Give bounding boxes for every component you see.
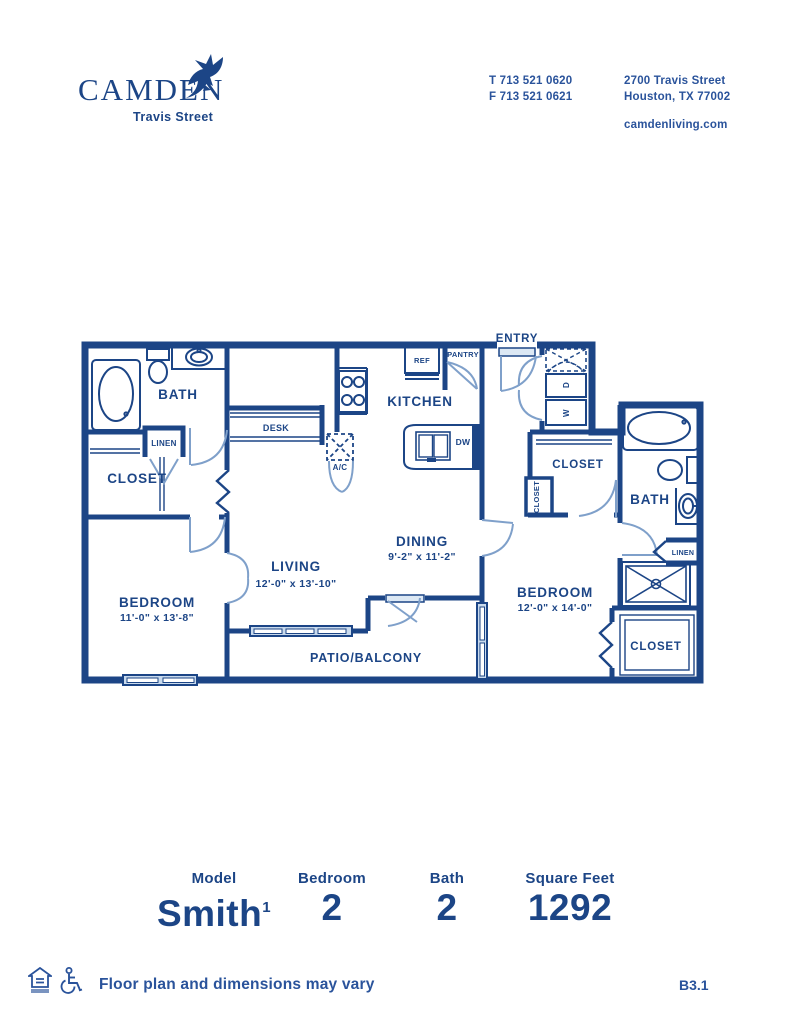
label-closet3: CLOSET	[630, 641, 681, 653]
label-ac: A/C	[333, 463, 348, 472]
footer-disclaimer: Floor plan and dimensions may vary	[99, 976, 375, 994]
summary-model-sup: 1	[262, 899, 271, 916]
ac-closet	[327, 434, 353, 460]
summary-sqft-label: Square Feet	[525, 870, 614, 887]
label-entry: ENTRY	[496, 333, 539, 345]
summary-bedroom-value: 2	[298, 889, 366, 927]
label-dining: DINING	[396, 534, 448, 549]
label-kitchen: KITCHEN	[387, 394, 453, 409]
island-end-cap	[472, 424, 483, 470]
label-bedroom2: BEDROOM	[517, 585, 593, 600]
summary-model-label: Model	[157, 870, 271, 887]
label-living: LIVING	[271, 559, 321, 574]
label-ref: REF	[414, 356, 430, 365]
dims-bedroom2: 12'-0" x 14'-0"	[518, 602, 593, 614]
label-pantry: PANTRY	[447, 350, 479, 359]
label-dw: DW	[456, 437, 471, 447]
dims-bedroom1: 11'-0" x 13'-8"	[120, 612, 194, 624]
summary-bedroom: Bedroom 2	[298, 870, 366, 927]
label-dryer: D	[562, 382, 571, 388]
label-closet2: CLOSET	[552, 459, 603, 471]
summary-model-value: Smith	[157, 893, 262, 934]
entry-lintel	[499, 348, 535, 356]
summary-sqft: Square Feet 1292	[525, 870, 614, 927]
label-patio: PATIO/BALCONY	[310, 651, 422, 665]
label-bath1: BATH	[158, 387, 198, 402]
summary-model: Model Smith1	[157, 870, 271, 933]
summary-bath-label: Bath	[430, 870, 465, 887]
label-desk: DESK	[263, 423, 289, 433]
label-linen1: LINEN	[151, 439, 177, 448]
label-closet1: CLOSET	[107, 471, 167, 486]
dims-dining: 9'-2" x 11'-2"	[388, 551, 456, 563]
closet2-shelves	[536, 440, 612, 444]
summary-bath: Bath 2	[430, 870, 465, 927]
equal-housing-icon	[28, 967, 52, 993]
label-hall-closet: CLOSET	[532, 481, 541, 513]
label-washer: W	[562, 409, 571, 417]
label-bedroom1: BEDROOM	[119, 595, 195, 610]
summary-bedroom-label: Bedroom	[298, 870, 366, 887]
summary-bath-value: 2	[430, 889, 465, 927]
dims-living: 12'-0" x 13'-10"	[256, 578, 337, 590]
summary-sqft-value: 1292	[525, 889, 614, 927]
label-bath2: BATH	[630, 492, 670, 507]
plan-code: B3.1	[679, 977, 709, 993]
accessibility-icon	[60, 967, 86, 995]
label-linen2: LINEN	[672, 550, 695, 557]
patio-door-lintel	[386, 595, 424, 602]
floorplan-svg: BATH LINEN CLOSET BEDROOM 11'-0" x 13'-8…	[0, 0, 799, 1034]
